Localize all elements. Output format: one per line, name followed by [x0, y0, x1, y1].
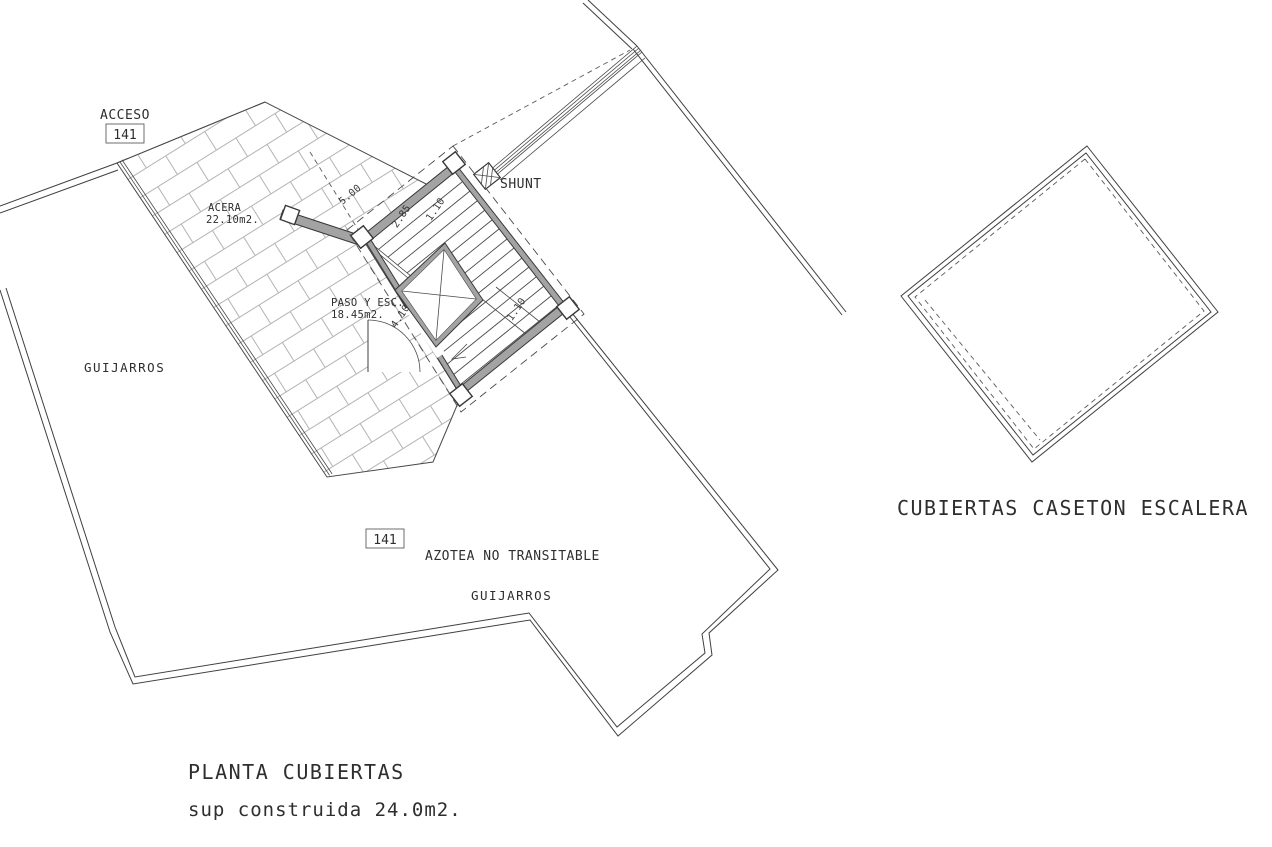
caseton-outline-inner [908, 153, 1211, 455]
azotea-label: AZOTEA NO TRANSITABLE [425, 549, 600, 564]
acera-label: ACERA [208, 202, 241, 214]
shunt-marker [474, 163, 501, 190]
roof-plan-drawing: ACCESO 141 ACERA 22.10m2. GUIJARROS PASO… [0, 0, 1272, 847]
paso-area: 18.45m2. [331, 309, 384, 321]
party-wall-stub-b [583, 3, 632, 49]
azotea-ref: 141 [373, 533, 396, 548]
guijarros-center-label: GUIJARROS [471, 588, 552, 603]
guijarros-left-label: GUIJARROS [84, 360, 165, 375]
paso-label: PASO Y ESC. [331, 297, 404, 309]
acceso-label: ACCESO [100, 108, 150, 123]
caseton-outline-outer [901, 146, 1218, 462]
plan-subtitle: sup construida 24.0m2. [188, 799, 462, 821]
party-wall-stub-a [588, 0, 637, 46]
street-edge-inner [0, 170, 118, 213]
acera-area: 22.10m2. [206, 214, 259, 226]
party-wall-long-b [633, 49, 842, 315]
caseton-label: CUBIERTAS CASETON ESCALERA [897, 496, 1249, 520]
caseton-dashed-slope [925, 300, 1040, 440]
acceso-ref: 141 [113, 128, 136, 143]
street-edge-outer [0, 163, 117, 206]
shunt-label: SHUNT [500, 177, 542, 192]
party-wall-multiline [489, 46, 642, 177]
party-wall-long-a [637, 46, 846, 312]
party-wall-extra-line [500, 58, 645, 180]
caseton-figure [901, 146, 1218, 462]
floor-plan-page: ACCESO 141 ACERA 22.10m2. GUIJARROS PASO… [0, 0, 1272, 847]
caseton-dashed-inset [915, 159, 1204, 449]
plan-title: PLANTA CUBIERTAS [188, 760, 405, 784]
plan-labels: ACCESO 141 ACERA 22.10m2. GUIJARROS PASO… [84, 108, 1249, 821]
overhang-dash-extension [453, 50, 630, 146]
